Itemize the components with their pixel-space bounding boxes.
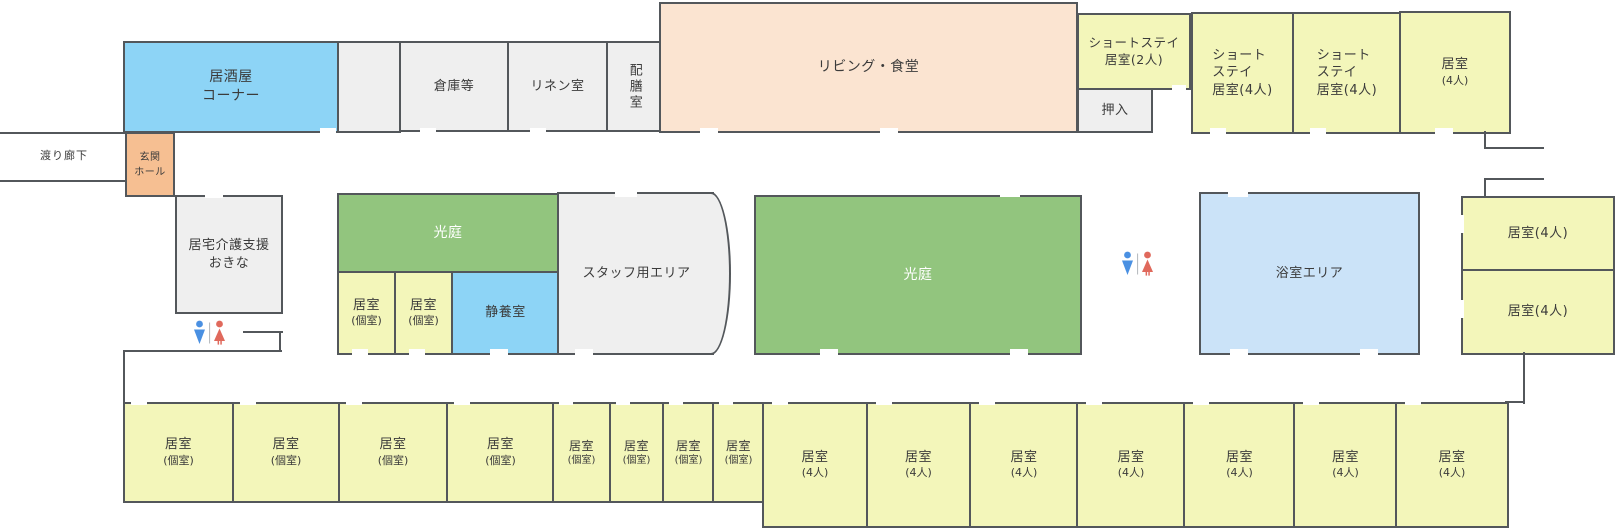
door-gap bbox=[1435, 128, 1453, 135]
wall-segment bbox=[1484, 178, 1544, 180]
toilet-female-icon bbox=[1142, 252, 1153, 276]
door-gap bbox=[615, 191, 637, 197]
room-kyoshitsu-4-s6: 居室 (4人) bbox=[1293, 402, 1398, 528]
room-bath-area: 浴室エリア bbox=[1199, 192, 1420, 355]
room-unlabeled-storage bbox=[337, 41, 401, 133]
room-koshitsu-s2: 居室 (個室) bbox=[232, 402, 340, 503]
door-gap bbox=[1010, 349, 1028, 356]
room-shortstay-4-b: ショート ステイ 居室(4人) bbox=[1292, 12, 1402, 134]
door-gap bbox=[1172, 85, 1186, 91]
door-gap bbox=[454, 399, 470, 405]
room-kyoshitsu-4-east-1: 居室(4人) bbox=[1461, 196, 1615, 272]
room-kyoshitsu-4-s2: 居室 (4人) bbox=[866, 402, 971, 528]
room-koshitsu-s5: 居室 (個室) bbox=[552, 402, 611, 503]
door-gap bbox=[1310, 128, 1326, 135]
room-koshitsu-s1: 居室 (個室) bbox=[123, 402, 234, 503]
room-haizen: 配膳室 bbox=[606, 41, 662, 132]
door-gap bbox=[1458, 215, 1464, 233]
wall-segment bbox=[1484, 178, 1486, 198]
room-kyoshitsu-4-s7: 居室 (4人) bbox=[1395, 402, 1509, 528]
door-gap bbox=[880, 128, 898, 135]
restroom-divider bbox=[209, 323, 210, 344]
door-gap bbox=[1230, 349, 1248, 356]
room-koshitsu-mid-a: 居室 (個室) bbox=[337, 271, 396, 355]
door-gap bbox=[979, 399, 995, 405]
wall-segment bbox=[0, 132, 127, 134]
door-gap bbox=[669, 399, 683, 405]
door-gap bbox=[1303, 399, 1319, 405]
door-gap bbox=[772, 399, 788, 405]
room-linen: リネン室 bbox=[507, 41, 608, 132]
door-gap bbox=[1086, 399, 1102, 405]
door-gap bbox=[700, 128, 718, 135]
wall-segment bbox=[1484, 147, 1544, 149]
room-shortstay-2: ショートステイ 居室(2人) bbox=[1077, 13, 1191, 90]
room-kyoshitsu-4-s1: 居室 (4人) bbox=[762, 402, 868, 528]
door-gap bbox=[409, 349, 425, 356]
door-gap bbox=[1405, 399, 1421, 405]
room-kyoshitsu-4-s3: 居室 (4人) bbox=[969, 402, 1079, 528]
door-gap bbox=[1193, 399, 1209, 405]
door-gap bbox=[205, 193, 223, 198]
room-oshiire: 押入 bbox=[1077, 88, 1153, 133]
restroom-sign-center bbox=[1120, 251, 1156, 282]
door-gap bbox=[490, 349, 508, 356]
wall-segment bbox=[1523, 352, 1525, 404]
wall-segment bbox=[0, 180, 127, 182]
staff-area-curved-edge bbox=[711, 192, 731, 355]
door-gap bbox=[1360, 349, 1378, 356]
door-gap bbox=[575, 349, 593, 356]
toilet-male-icon bbox=[1122, 252, 1133, 275]
room-koshitsu-s3: 居室 (個室) bbox=[338, 402, 448, 503]
room-seiyou: 静養室 bbox=[451, 271, 560, 355]
wall-segment bbox=[123, 350, 125, 404]
wall-segment bbox=[243, 331, 283, 333]
door-gap bbox=[820, 349, 838, 356]
toilet-female-icon bbox=[214, 321, 225, 345]
room-kouniwa-main: 光庭 bbox=[754, 195, 1082, 355]
wall-segment bbox=[279, 331, 281, 352]
floor-plan: 居酒屋 コーナー 倉庫等 リネン室 配膳室 リビング・食堂 ショートステイ 居室… bbox=[0, 0, 1618, 530]
door-gap bbox=[530, 128, 546, 135]
corridor-watari-roka: 渡り廊下 bbox=[14, 140, 114, 170]
room-izakaya-corner: 居酒屋 コーナー bbox=[123, 41, 339, 133]
door-gap bbox=[1210, 128, 1226, 135]
door-gap bbox=[1228, 191, 1248, 197]
room-koshitsu-s4: 居室 (個室) bbox=[446, 402, 555, 503]
room-koshitsu-s7: 居室 (個室) bbox=[662, 402, 715, 503]
wall-segment bbox=[124, 350, 282, 352]
room-kyoshitsu-4-east-2: 居室(4人) bbox=[1461, 269, 1615, 355]
room-koshitsu-s6: 居室 (個室) bbox=[609, 402, 664, 503]
door-gap bbox=[420, 128, 436, 135]
room-shortstay-4-a: ショート ステイ 居室(4人) bbox=[1191, 12, 1294, 134]
door-gap bbox=[876, 399, 892, 405]
door-gap bbox=[559, 399, 573, 405]
door-gap bbox=[346, 399, 362, 405]
room-kyoshitsu-4-s4: 居室 (4人) bbox=[1076, 402, 1186, 528]
room-kyoshitsu-4-top: 居室 (4人) bbox=[1399, 11, 1511, 134]
door-gap bbox=[320, 128, 336, 135]
room-koshitsu-mid-b: 居室 (個室) bbox=[394, 271, 453, 355]
restroom-divider bbox=[1137, 254, 1138, 275]
wall-segment bbox=[1505, 401, 1525, 403]
room-kouniwa-west: 光庭 bbox=[337, 193, 559, 273]
room-souko: 倉庫等 bbox=[399, 41, 509, 132]
room-kyoshitsu-4-s5: 居室 (4人) bbox=[1183, 402, 1296, 528]
room-kyotaku-kaigo-shien: 居宅介護支援 おきな bbox=[175, 195, 283, 314]
door-gap bbox=[1000, 191, 1020, 197]
toilet-male-icon bbox=[194, 321, 205, 344]
door-gap bbox=[131, 399, 147, 405]
restroom-sign-west bbox=[192, 320, 228, 351]
door-gap bbox=[616, 399, 630, 405]
room-koshitsu-s8: 居室 (個室) bbox=[712, 402, 765, 503]
door-gap bbox=[1458, 300, 1464, 318]
room-living-dining: リビング・食堂 bbox=[659, 2, 1078, 133]
room-staff-area: スタッフ用エリア bbox=[557, 192, 714, 355]
door-gap bbox=[719, 399, 733, 405]
room-genkan-hall: 玄関 ホール bbox=[125, 132, 175, 197]
door-gap bbox=[240, 399, 256, 405]
door-gap bbox=[352, 349, 368, 356]
